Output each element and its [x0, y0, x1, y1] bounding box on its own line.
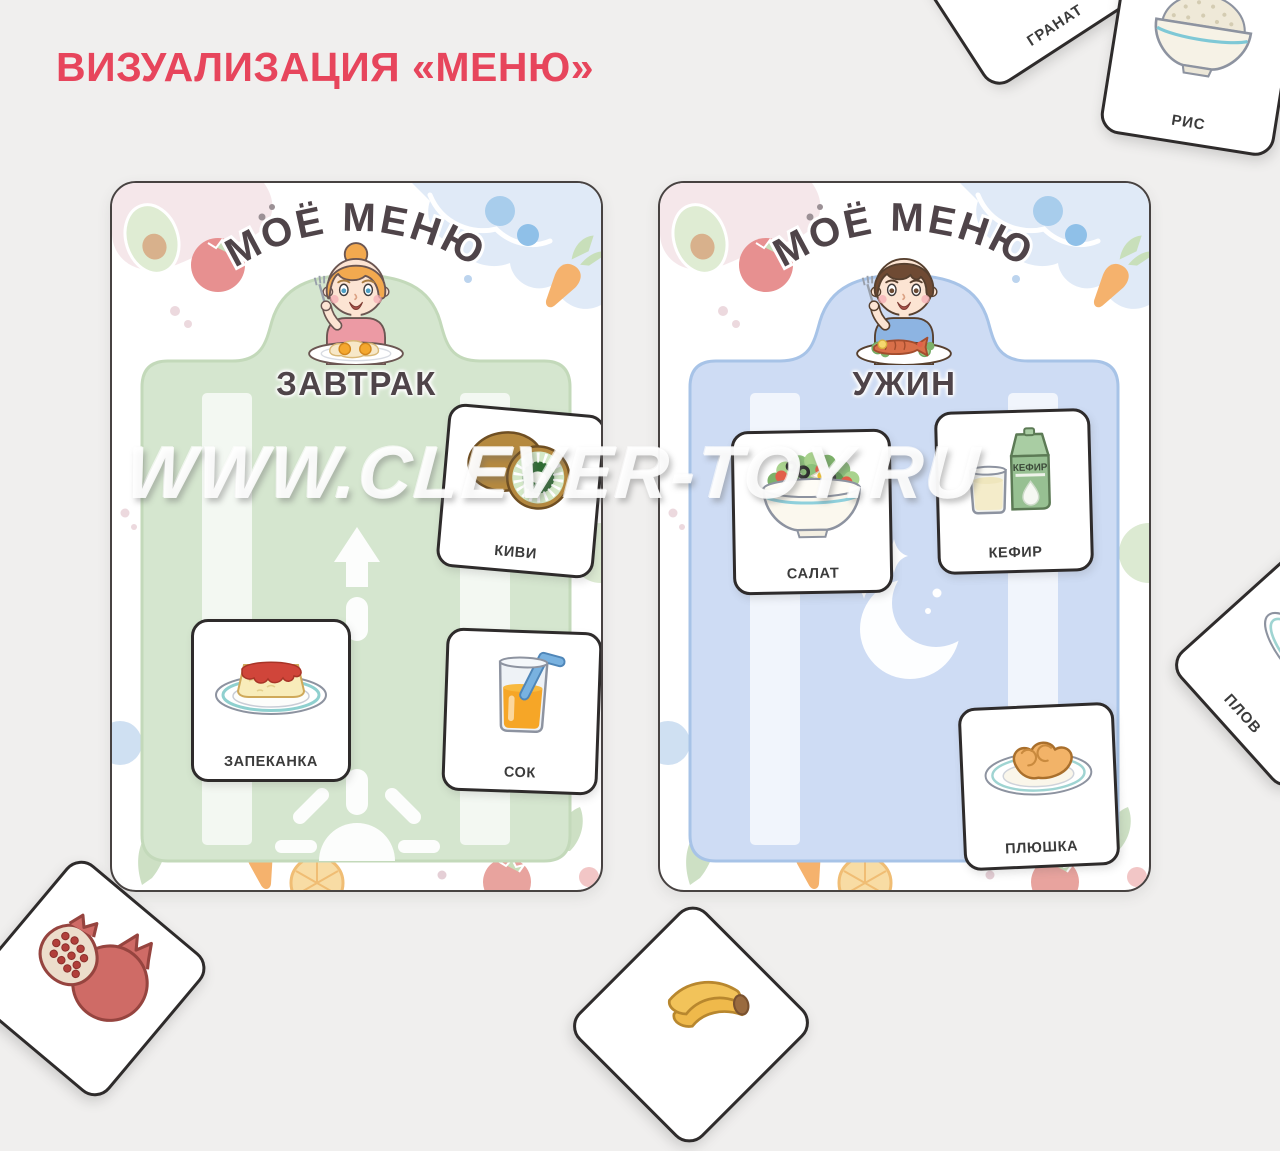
food-card-bun: ПЛЮШКА [958, 702, 1121, 872]
food-card-label: КЕФИР [940, 543, 1090, 563]
meal-label-dinner: УЖИН [660, 365, 1149, 403]
food-card-kiwi: КИВИ [435, 402, 603, 579]
juice-art [462, 638, 583, 742]
blueberry-decoration [485, 196, 515, 226]
fork-icon [315, 276, 324, 285]
scatter-card-pilaf: ПЛОВ [1167, 543, 1280, 795]
scatter-card-rice: РИС [1098, 0, 1280, 159]
food-card-label: ЗАПЕКАНКА [194, 754, 348, 770]
blueberry-decoration [1033, 196, 1063, 226]
page-title: ВИЗУАЛИЗАЦИЯ «МЕНЮ» [56, 44, 594, 91]
menu-board-breakfast: МОЁ МЕНЮ ЗАВТРАК [110, 181, 603, 892]
kefir-carton-label: КЕФИР [1013, 462, 1048, 474]
boy-character-illustration [829, 241, 979, 365]
salad-art [749, 439, 875, 541]
food-card-casserole: ЗАПЕКАНКА [191, 619, 351, 782]
food-card-juice: СОК [441, 627, 603, 795]
girl-character-illustration [281, 241, 431, 365]
kiwi-art [457, 414, 589, 524]
scatter-card-label: РИС [1103, 101, 1274, 144]
rice-art [1133, 0, 1274, 92]
food-card-label: ПЛЮШКА [966, 837, 1117, 860]
meal-label-breakfast: ЗАВТРАК [112, 365, 601, 403]
food-card-label: КИВИ [439, 538, 592, 567]
menu-board-dinner: МОЁ МЕНЮ УЖИН [658, 181, 1151, 892]
sweet-bun-art [976, 712, 1100, 815]
food-card-kefir: КЕФИР КЕФИР [934, 408, 1094, 575]
pomegranate-art [1, 871, 196, 1062]
fork-icon [863, 276, 872, 285]
tomato-decoration-bottom [483, 858, 531, 890]
casserole-art [209, 629, 333, 729]
scatter-card-pomegranate: ГРАНАТ [895, 0, 1141, 92]
scatter-card-banana-partial [565, 898, 817, 1150]
kefir-art: КЕФИР [953, 418, 1074, 521]
food-card-salad: САЛАТ [731, 429, 894, 596]
food-card-label: САЛАТ [736, 565, 890, 584]
banana-art [623, 924, 791, 1092]
food-card-label: СОК [445, 762, 595, 783]
